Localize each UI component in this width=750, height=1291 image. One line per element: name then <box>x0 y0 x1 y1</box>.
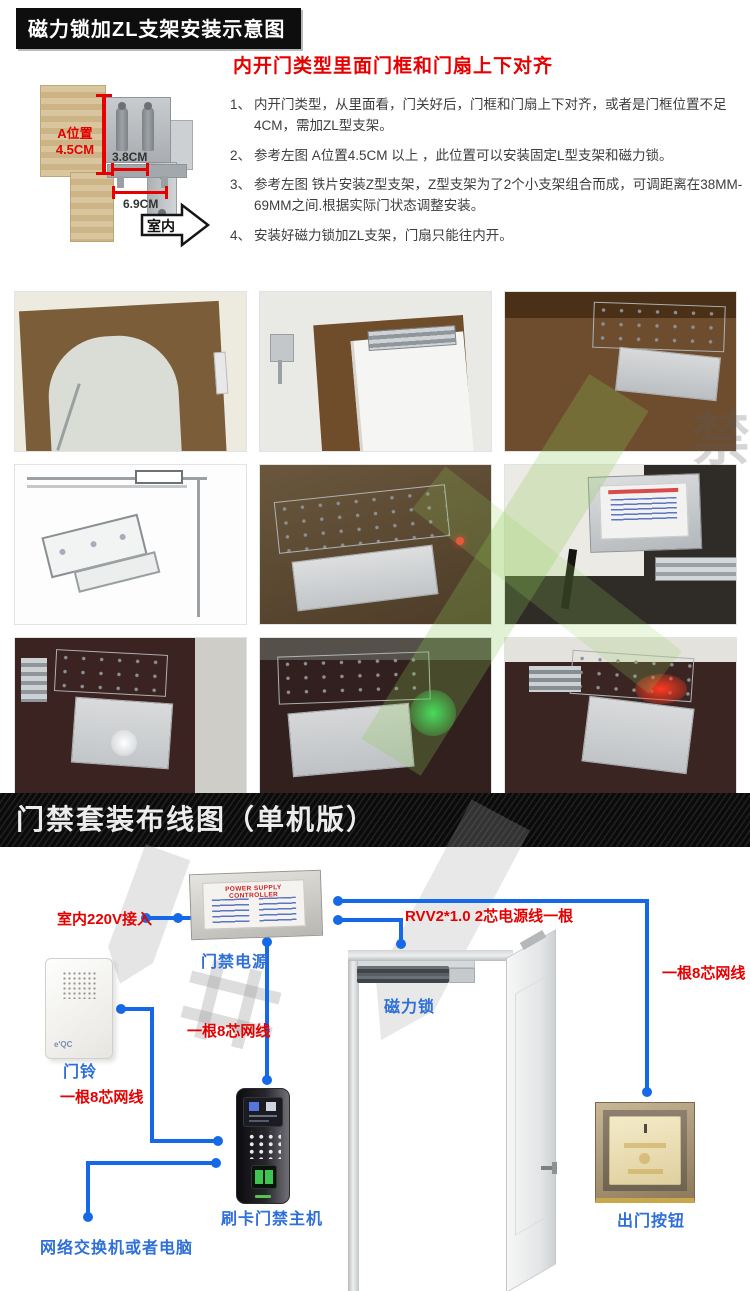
label-doorbell: 门铃 <box>63 1058 97 1082</box>
instruction-list: 1、 内开门类型，从里面看，门关好后，门框和门扇上下对齐，或者是门框位置不足4C… <box>230 94 746 254</box>
doorbell-speaker <box>62 971 98 999</box>
open-door <box>506 929 556 1291</box>
maglock-bar <box>21 658 47 702</box>
measure-line-a <box>102 96 106 174</box>
instruction-item: 1、 内开门类型，从里面看，门关好后，门框和门扇上下对齐，或者是门框位置不足4C… <box>230 94 746 137</box>
wire-node <box>396 939 406 949</box>
photo-power-supply <box>504 464 737 625</box>
label-psu: 门禁电源 <box>201 948 269 972</box>
led-flare <box>111 730 137 756</box>
wire-network <box>86 1161 218 1165</box>
bracket-plate <box>615 347 721 401</box>
card-reader <box>236 1088 290 1204</box>
photo-installed-white-led <box>14 637 247 798</box>
label-net-cable-left: 一根8芯网线 <box>60 1086 143 1107</box>
indoor-arrow: 室内 <box>140 202 212 250</box>
wire-node <box>642 1087 652 1097</box>
page-title: 磁力锁加ZL支架安装示意图 <box>16 8 301 49</box>
instruction-item: 2、 参考左图 A位置4.5CM 以上 ，此位置可以安装固定L型支架和磁力锁。 <box>230 145 746 166</box>
photo-gallery <box>14 291 737 798</box>
label-reader: 刷卡门禁主机 <box>221 1205 323 1229</box>
power-supply-controller: POWER SUPPLY CONTROLLER <box>189 870 323 941</box>
wire-node <box>213 1136 223 1146</box>
maglock-outline <box>135 470 183 484</box>
psu-spec-lines <box>212 898 250 924</box>
reader-keypad <box>245 1131 281 1159</box>
bracket-plate <box>54 649 168 697</box>
installation-measure-diagram: A位置4.5CM 3.8CM 6.9CM 室内 <box>35 78 235 260</box>
maglock-bar <box>655 557 737 581</box>
wire-doorbell <box>118 1007 154 1011</box>
psu-spec-lines <box>259 897 297 923</box>
wire-exit-drop <box>645 899 649 1092</box>
wire-doorbell-to-reader <box>150 1139 220 1143</box>
led-red <box>456 537 464 545</box>
instruction-item: 4、 安装好磁力锁加ZL支架，门扇只能往内开。 <box>230 225 746 246</box>
page: 磁力锁加ZL支架安装示意图 内开门类型里面门框和门扇上下对齐 A位置4.5CM … <box>0 0 750 1291</box>
wire-node <box>211 1158 221 1168</box>
measure-line-69 <box>112 191 168 194</box>
wire-node <box>262 937 272 947</box>
psu-box <box>588 473 703 553</box>
maglock <box>357 966 449 983</box>
measure-label-38: 3.8CM <box>112 150 147 164</box>
bracket-plate <box>581 696 694 774</box>
door-leaf-wood <box>70 172 114 242</box>
wire-node <box>262 1075 272 1085</box>
label-network-switch: 网络交换机或者电脑 <box>40 1234 193 1258</box>
bracket-plate <box>287 703 414 777</box>
wire-node <box>333 915 343 925</box>
led-green <box>410 690 456 736</box>
fingerprint-sensor <box>251 1165 277 1189</box>
label-net-cable-right: 一根8芯网线 <box>662 962 745 983</box>
wire-network-drop <box>86 1161 90 1219</box>
photo-bracket-drawing <box>14 464 247 625</box>
led-red <box>635 674 687 704</box>
wire-node <box>333 896 343 906</box>
door-handle-knob <box>552 1162 557 1174</box>
measure-line-38 <box>111 168 149 171</box>
wiring-banner-title: 门禁套装布线图（单机版） <box>16 793 376 847</box>
exit-button <box>595 1102 695 1203</box>
doorbell-brand: e'QC <box>54 1040 72 1049</box>
section-heading: 内开门类型里面门框和门扇上下对齐 <box>233 51 553 78</box>
bracket-plate <box>291 545 438 612</box>
photo-maglock-installed <box>259 291 492 452</box>
maglock-bar <box>529 666 581 692</box>
bracket-plate <box>277 651 431 704</box>
bracket-plate <box>274 484 450 554</box>
measure-label-a: A位置4.5CM <box>49 126 101 157</box>
photo-zl-bracket-closeup <box>504 291 737 452</box>
wall-bracket <box>270 334 294 362</box>
reader-screen <box>243 1097 283 1127</box>
mount-stub <box>117 176 124 188</box>
maglock-armature <box>449 968 475 983</box>
instruction-item: 3、 参考左图 铁片安装Z型支架，Z型支架为了2个小支架组合而成，可调距离在38… <box>230 174 746 217</box>
door-frame-left <box>348 950 359 1291</box>
wire-doorbell-drop <box>150 1007 154 1143</box>
wire-mains <box>146 916 194 920</box>
doorbell: e'QC <box>45 958 113 1059</box>
photo-installed-green-led <box>259 637 492 798</box>
label-mains: 室内220V接入 <box>57 908 152 929</box>
label-maglock: 磁力锁 <box>384 993 435 1017</box>
label-net-cable-mid: 一根8芯网线 <box>187 1020 270 1041</box>
wiring-banner: 门禁套装布线图（单机版） <box>0 793 750 847</box>
label-power-cable: RVV2*1.0 2芯电源线一根 <box>405 905 573 926</box>
bracket-plate <box>592 302 726 353</box>
photo-bracket-kit <box>259 464 492 625</box>
wire-node <box>173 913 183 923</box>
photo-arched-door-frame <box>14 291 247 452</box>
wire-psu-to-exit <box>335 899 649 903</box>
exit-button-plate <box>609 1116 681 1185</box>
photo-installed-red-led <box>504 637 737 798</box>
wire-node <box>83 1212 93 1222</box>
label-exit-button: 出门按钮 <box>617 1207 685 1231</box>
indoor-arrow-label: 室内 <box>147 216 175 236</box>
reader-logo <box>255 1195 271 1198</box>
wire-psu-to-maglock <box>335 918 403 922</box>
